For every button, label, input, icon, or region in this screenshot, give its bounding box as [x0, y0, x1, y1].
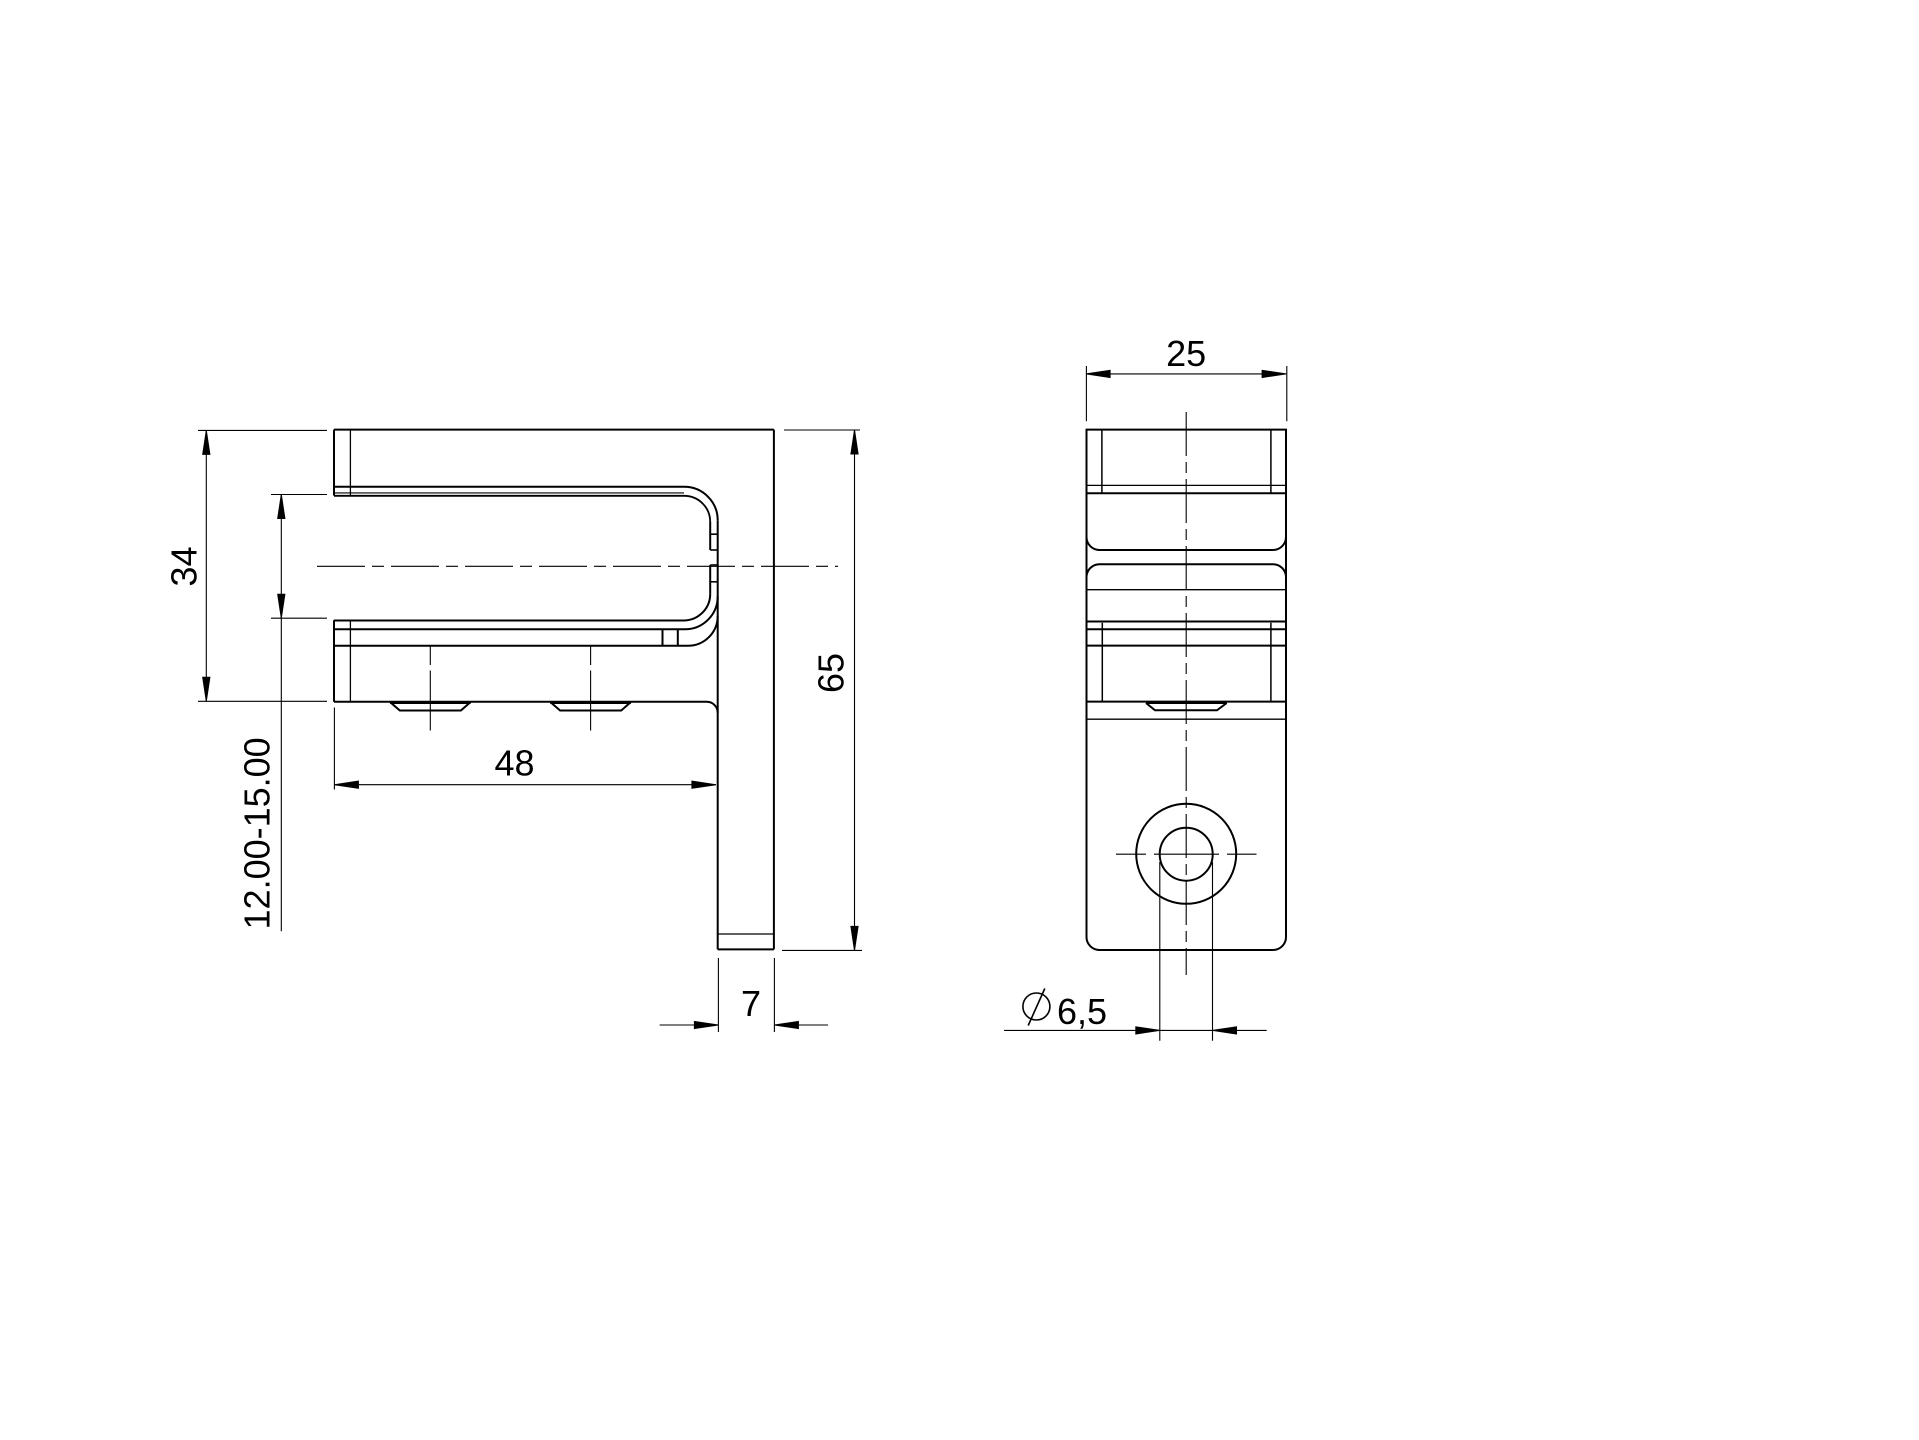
- svg-text:6,5: 6,5: [1057, 991, 1107, 1032]
- svg-text:65: 65: [811, 653, 852, 693]
- svg-text:48: 48: [494, 743, 534, 784]
- svg-text:34: 34: [164, 546, 205, 586]
- svg-text:7: 7: [741, 983, 761, 1024]
- svg-text:12.00-15.00: 12.00-15.00: [237, 737, 278, 929]
- svg-text:25: 25: [1166, 333, 1206, 374]
